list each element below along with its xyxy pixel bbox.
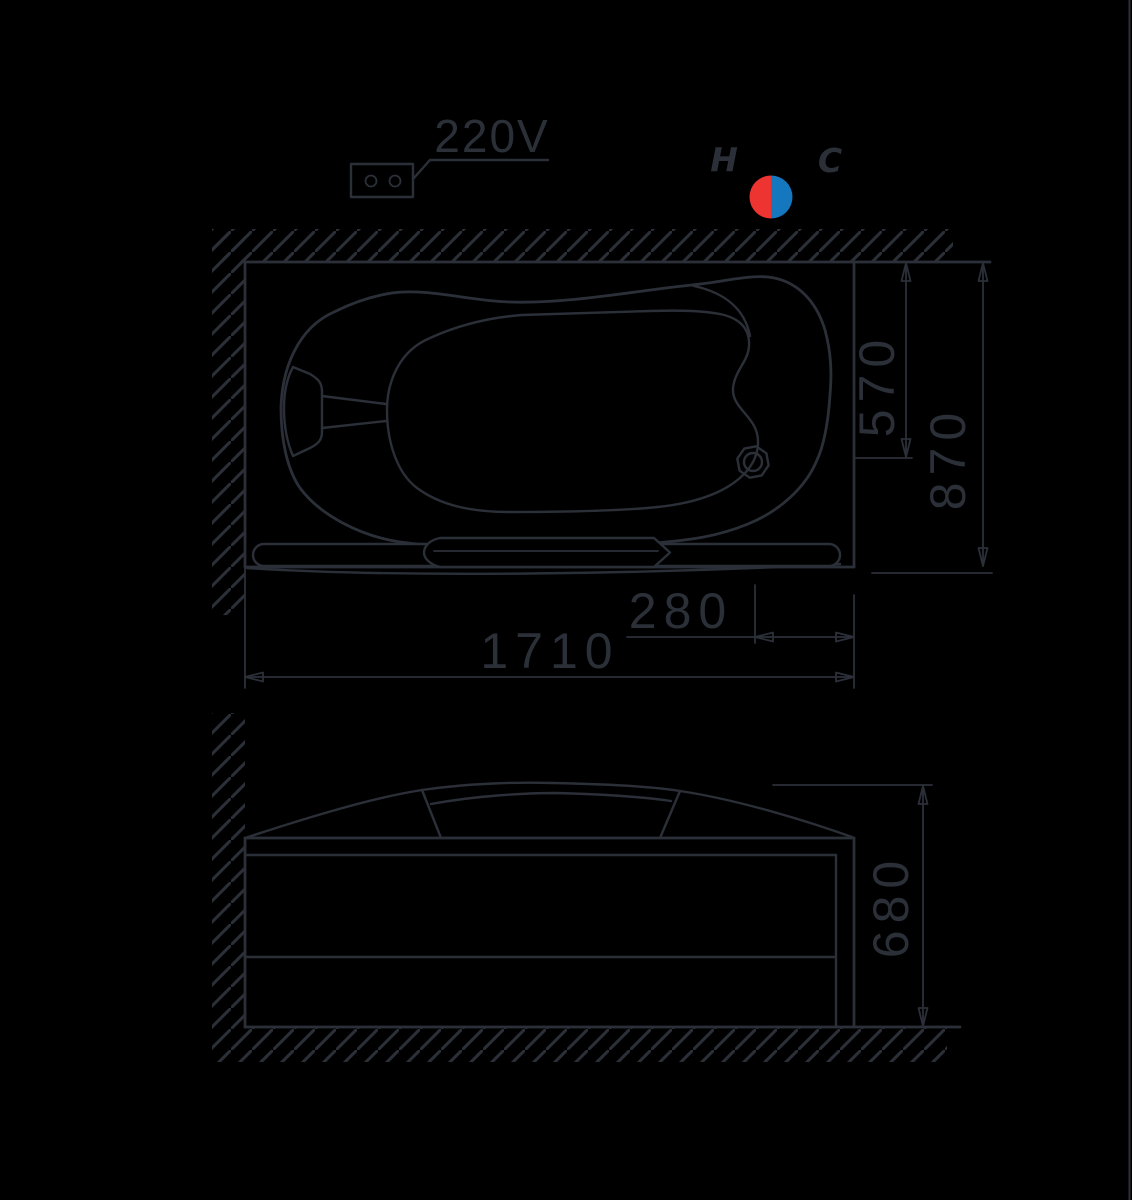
cold-half-circle	[771, 176, 793, 219]
dim-label-870: 870	[920, 406, 976, 510]
tub-inner-basin	[387, 311, 758, 512]
outlet-pin-left	[366, 176, 377, 187]
pillow-top-arc	[422, 783, 680, 791]
voltage-label: 220V	[434, 110, 549, 162]
hot-half-circle	[750, 176, 772, 219]
rim-slope-left	[245, 790, 422, 838]
grab-bar-sleeve	[424, 538, 670, 567]
tub-outer-rim	[281, 277, 831, 549]
dimension-570: 570	[849, 263, 912, 458]
outlet-box	[351, 164, 413, 197]
pillow-right-edge	[660, 791, 680, 838]
pillow-inner-arc	[431, 793, 671, 804]
dim-label-1710: 1710	[480, 623, 619, 679]
headrest-bracket-line-top	[322, 396, 386, 404]
dimensions-front-view: 680	[773, 785, 932, 1026]
rim-slope-right	[680, 791, 852, 837]
left-wall-hatch	[212, 229, 245, 615]
headrest-outline	[284, 367, 322, 456]
dimensions-top-view: 570 870 280 1710	[245, 263, 992, 688]
front-view	[245, 783, 960, 1027]
technical-drawing-canvas: 570 870 280 1710	[0, 0, 1132, 1200]
floor-hatch	[212, 1027, 947, 1062]
cold-label: C	[818, 141, 842, 180]
hot-cold-indicator-icon: H C	[710, 140, 842, 219]
pillow-left-edge	[422, 790, 441, 838]
back-wall-hatch	[212, 229, 953, 262]
headrest-bracket-line-bottom	[322, 421, 386, 428]
dimension-1710: 1710	[245, 567, 854, 688]
hot-label: H	[710, 140, 738, 179]
bathtub-installation-drawing: 570 870 280 1710	[0, 0, 1132, 1200]
dim-label-280: 280	[629, 583, 733, 639]
power-outlet-icon: 220V	[351, 110, 550, 197]
left-wall-hatch	[212, 713, 245, 1027]
dimension-680: 680	[773, 785, 932, 1026]
leader-line	[413, 160, 548, 179]
dim-label-570: 570	[849, 333, 905, 437]
dim-label-680: 680	[863, 854, 919, 958]
outlet-pin-right	[390, 176, 401, 187]
dimension-280: 280	[627, 583, 854, 688]
